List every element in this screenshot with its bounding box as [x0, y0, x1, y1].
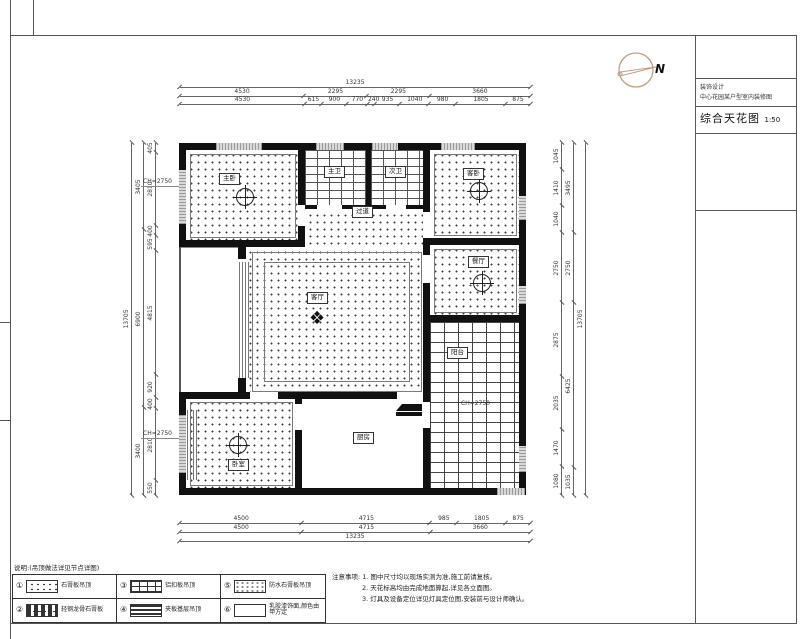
wall — [430, 238, 526, 245]
curtain-box — [239, 262, 251, 378]
ceiling-lamp-icon — [229, 436, 247, 454]
swatch-stipple — [234, 580, 266, 593]
frame-tick — [0, 420, 10, 421]
frame-right — [796, 35, 797, 623]
note-line: 1. 图中尺寸均以现场实测为准,施工前请复核。 — [362, 573, 496, 581]
titleblock-border — [695, 35, 696, 623]
frame-tick — [0, 322, 10, 323]
door-opening — [423, 255, 430, 283]
legend-label: 乳胶漆饰面,颜色由甲方定 — [269, 604, 322, 617]
window — [497, 488, 525, 495]
legend-number: ⑥ — [224, 606, 231, 614]
wall — [430, 315, 526, 322]
door-opening — [423, 212, 430, 238]
wall — [295, 430, 302, 495]
dim-left-total: 13705 — [126, 143, 134, 495]
swatch-dots — [26, 580, 58, 593]
dim-top-total: 13235 — [180, 80, 530, 88]
drawing-sheet: 装饰设计 中心花园某户型室内装修图 综合天花图 1:50 N 13235 453… — [0, 0, 800, 639]
legend-header: 说明:(吊顶做法详见节点详图) — [14, 562, 99, 572]
legend-label: 铝扣板吊顶 — [165, 583, 195, 590]
legend-number: ② — [16, 606, 23, 614]
titleblock-firm-line1: 装饰设计 — [700, 84, 724, 91]
window — [316, 143, 344, 150]
window — [519, 446, 526, 472]
ceiling-lamp-icon — [473, 274, 491, 292]
room-label-bedroom2: 客卧 — [463, 168, 484, 180]
drawing-scale: 1:50 — [765, 116, 781, 124]
swatch-dash — [26, 604, 58, 617]
dim-left-inner: 405281040059548159204002810550 — [150, 143, 158, 495]
wall — [366, 143, 371, 205]
dim-right-middle: 3495275064251035 — [568, 143, 576, 495]
ceiling-height-note: CH=2750 — [143, 179, 172, 185]
wall — [295, 398, 302, 404]
legend-item: ⑤ 防水石膏板吊顶 — [221, 575, 325, 599]
legend-label: 防水石膏板吊顶 — [269, 583, 311, 590]
wall — [406, 205, 423, 209]
leader-line — [141, 186, 179, 187]
window — [519, 286, 526, 304]
window — [372, 143, 398, 150]
room-label-hallway: 过道 — [352, 206, 373, 218]
wall-thin — [179, 247, 181, 392]
legend-label: 石膏板吊顶 — [61, 583, 91, 590]
room-label-kitchen: 厨房 — [353, 432, 374, 444]
titleblock-firm-line2: 中心花园某户型室内装修图 — [700, 94, 772, 101]
window — [179, 415, 186, 473]
frame-bottom — [10, 623, 797, 624]
dim-right-total: 13705 — [580, 143, 588, 495]
wall-pillar — [238, 245, 246, 259]
legend-item: ⑥ 乳胶漆饰面,颜色由甲方定 — [221, 599, 325, 623]
room-label-balcony: 阳台 — [447, 347, 468, 359]
dim-top-row3: 453061590077024093510409801805875 — [180, 97, 530, 105]
swatch-bars — [130, 604, 162, 617]
notes-title: 注意事项: — [332, 573, 360, 581]
notes-block: 注意事项: 1. 图中尺寸均以现场实测为准,施工前请复核。 2. 天花标高均由完… — [332, 572, 642, 605]
dim-left-middle: 340569003400 — [138, 143, 146, 495]
dim-right-inner: 10451410104027502875203514701080 — [556, 143, 564, 495]
note-line: 3. 灯具及设备定位详见灯具定位图,安装前与设计师确认。 — [362, 595, 528, 603]
titleblock-divider — [695, 133, 796, 134]
legend-item: ③ 铝扣板吊顶 — [117, 575, 221, 599]
legend-label: 轻钢龙骨石膏板 — [61, 607, 103, 614]
window — [441, 143, 475, 150]
door-opening — [423, 402, 430, 428]
range-hood-icon — [396, 404, 422, 416]
ceiling-height-note: CH=2750 — [461, 401, 490, 407]
ceiling-lamp-icon — [236, 188, 254, 206]
dim-bottom-row2: 450047153660 — [180, 525, 530, 533]
legend-label: 夹板基层吊顶 — [165, 607, 201, 614]
dim-bottom-total: 13235 — [180, 534, 530, 542]
legend-item: ④ 夹板基层吊顶 — [117, 599, 221, 623]
room-label-dining: 餐厅 — [468, 256, 489, 268]
curtain-box — [187, 410, 197, 480]
swatch-grid — [130, 580, 162, 593]
legend-number: ④ — [120, 606, 127, 614]
window — [179, 170, 186, 224]
wall — [305, 205, 317, 209]
ceiling-edge-living-inner — [264, 262, 410, 382]
room-label-master-bedroom: 主卧 — [219, 173, 240, 185]
legend-table: ① 石膏板吊顶 ③ 铝扣板吊顶 ⑤ 防水石膏板吊顶 ② 轻钢龙骨石膏板 ④ 夹板… — [12, 574, 326, 623]
room-label-bath1: 主卫 — [324, 166, 345, 178]
window — [519, 196, 526, 220]
dim-bottom-row1: 450047159851805875 — [180, 516, 530, 524]
frame-left — [10, 0, 11, 639]
swatch-blank — [234, 604, 266, 617]
window — [216, 143, 262, 150]
note-line: 2. 天花标高均由完成地面算起,详见各立面图。 — [362, 584, 496, 592]
room-label-bath2: 次卫 — [385, 166, 406, 178]
titleblock-divider — [695, 78, 796, 79]
legend-number: ⑤ — [224, 582, 231, 590]
chandelier-icon: ❖ — [309, 310, 325, 328]
north-label: N — [655, 62, 665, 76]
room-label-living: 客厅 — [307, 292, 328, 304]
ceiling-lamp-icon — [470, 182, 488, 200]
legend-item: ① 石膏板吊顶 — [13, 575, 117, 599]
frame-top — [10, 35, 797, 36]
wall — [179, 488, 526, 495]
drawing-title: 综合天花图 1:50 — [700, 110, 780, 126]
ceiling-height-note: CH=2750 — [143, 431, 172, 437]
legend-number: ① — [16, 582, 23, 590]
legend-number: ③ — [120, 582, 127, 590]
titleblock-divider — [695, 106, 796, 107]
wall — [423, 143, 430, 495]
wall-pillar — [238, 378, 246, 398]
wall — [298, 143, 305, 205]
leader-line — [141, 438, 179, 439]
legend-item: ② 轻钢龙骨石膏板 — [13, 599, 117, 623]
frame-corner-stub — [33, 0, 34, 35]
titleblock-divider — [695, 210, 796, 211]
room-label-bedroom3: 卧室 — [228, 459, 249, 471]
void-line — [181, 247, 238, 248]
